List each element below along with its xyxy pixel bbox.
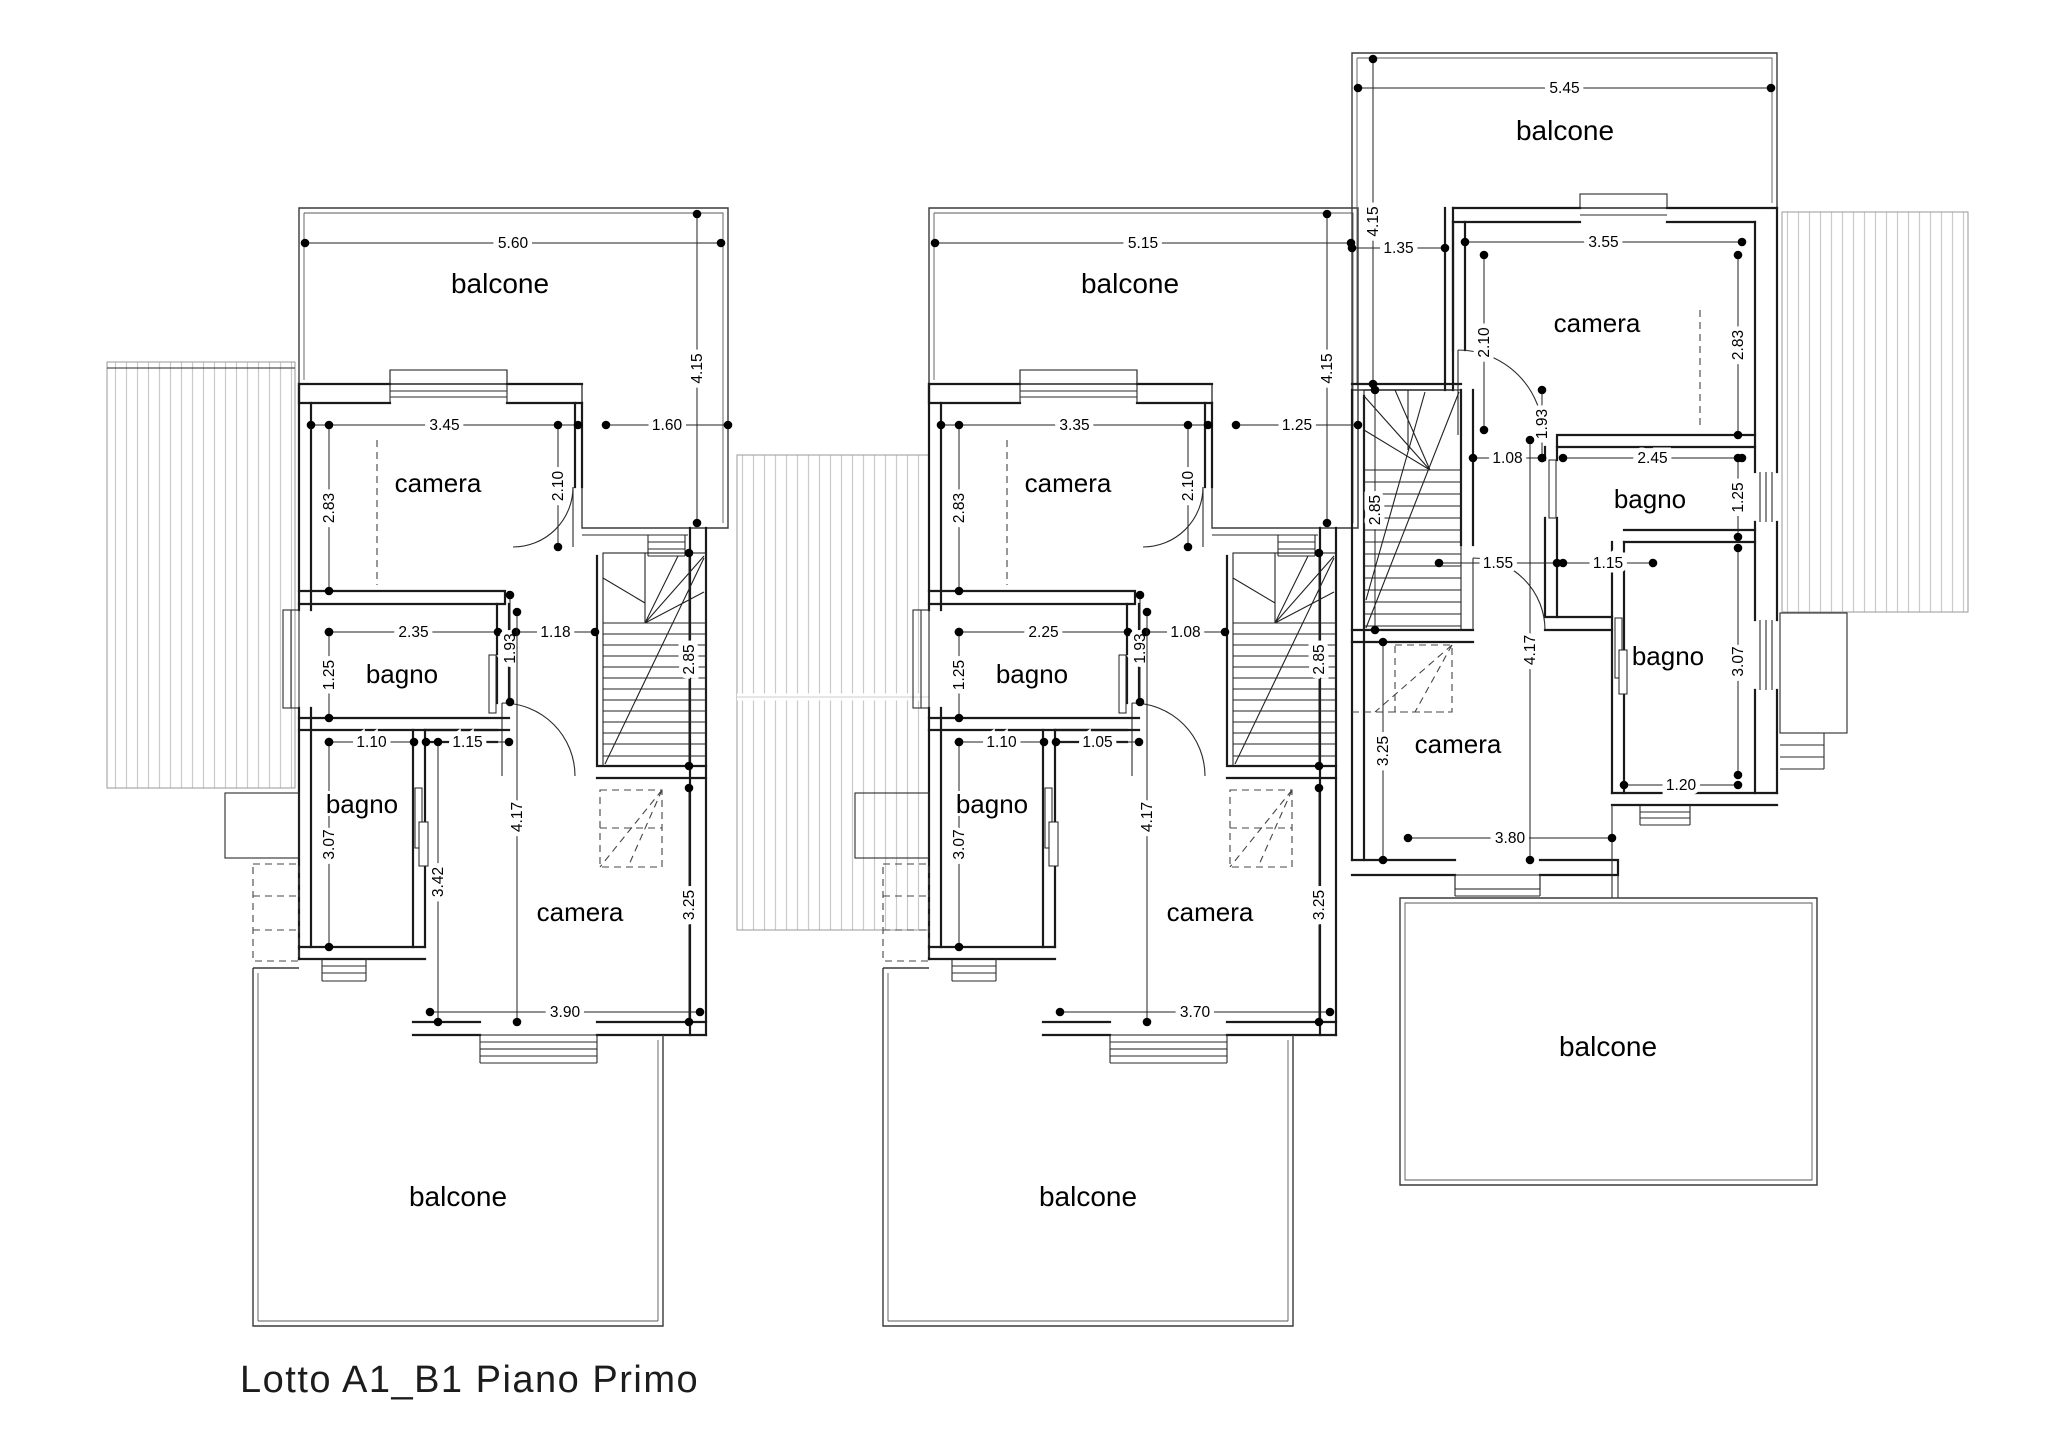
dimension-dot — [1538, 454, 1547, 463]
dimension-label: 1.15 — [452, 734, 482, 751]
roof-hatch-between-a-b — [737, 455, 929, 930]
dimension-dot — [685, 762, 694, 771]
dimension-label: 1.93 — [1132, 633, 1149, 663]
dimension-dot — [1526, 436, 1535, 445]
dimension-label: 4.15 — [689, 353, 706, 383]
room-label: balcone — [1039, 1181, 1137, 1212]
roof-hatch-left — [107, 362, 295, 788]
dimension-dot — [325, 943, 334, 952]
dimension-label: 3.90 — [550, 1004, 581, 1021]
dimension-label: 1.20 — [1666, 777, 1697, 794]
dimension-label: 2.35 — [398, 624, 428, 641]
unit-c-walls — [1352, 53, 1847, 1185]
dimension-label: 2.10 — [1476, 327, 1493, 358]
room-label: bagno — [326, 789, 398, 819]
room-label: camera — [395, 468, 482, 498]
dimension-dot — [685, 1018, 694, 1027]
dimension-dot — [1480, 251, 1489, 260]
dimension-dot — [1326, 1008, 1335, 1017]
dimension-dot — [1559, 559, 1568, 568]
dimension-dot — [1369, 55, 1378, 64]
dimension-label: 4.15 — [1365, 206, 1382, 236]
dimension-dot — [955, 738, 964, 747]
room-label: camera — [537, 897, 624, 927]
dimension-label: 1.60 — [652, 417, 683, 434]
dimension-dot — [937, 421, 946, 430]
dimension-dot — [1734, 431, 1743, 440]
dimension-dot — [1379, 856, 1388, 865]
dimension-dot — [325, 421, 334, 430]
dimension-dot — [1480, 426, 1489, 435]
room-label: camera — [1554, 308, 1641, 338]
dimension-dot — [591, 628, 600, 637]
room-label: bagno — [996, 659, 1068, 689]
dimension-dot — [1734, 781, 1743, 790]
dimension-label: 4.17 — [1139, 802, 1156, 832]
dimension-label: 3.35 — [1059, 417, 1089, 434]
dimension-label: 4.15 — [1319, 353, 1336, 383]
dimension-dot — [1435, 559, 1444, 568]
dimension-dot — [1143, 608, 1152, 617]
dimension-dot — [1354, 421, 1363, 430]
dimension-dot — [1348, 244, 1357, 253]
dimension-label: 2.83 — [951, 493, 968, 523]
dimension-label: 1.18 — [540, 624, 570, 641]
dimension-dot — [506, 591, 515, 600]
dimension-label: 3.70 — [1180, 1004, 1211, 1021]
dimension-dot — [1371, 626, 1380, 635]
dimension-dot — [505, 738, 514, 747]
dimension-dot — [1232, 421, 1241, 430]
room-label: balcone — [1516, 115, 1614, 146]
dimension-dot — [1315, 762, 1324, 771]
room-label: camera — [1167, 897, 1254, 927]
dimension-dot — [693, 210, 702, 219]
dimension-dot — [955, 587, 964, 596]
dimension-dot — [1559, 454, 1568, 463]
room-label: bagno — [1632, 641, 1704, 671]
dimension-label: 3.45 — [429, 417, 459, 434]
dimension-dot — [1056, 1008, 1065, 1017]
plan-title: Lotto A1_B1 Piano Primo — [240, 1359, 699, 1401]
dimension-dot — [512, 628, 521, 637]
dimension-dot — [693, 519, 702, 528]
dimension-dot — [602, 421, 611, 430]
floor-plan-page: 5.604.153.451.602.832.102.351.931.181.25… — [0, 0, 2048, 1448]
dimension-dot — [685, 549, 694, 558]
dimension-dot — [1315, 784, 1324, 793]
dimension-dot — [1734, 771, 1743, 780]
dimension-dot — [955, 943, 964, 952]
dimension-label: 1.93 — [1534, 409, 1551, 439]
dimension-dot — [1404, 834, 1413, 843]
dimension-label: 3.07 — [1730, 646, 1747, 676]
dimension-label: 2.83 — [321, 493, 338, 523]
dimension-dot — [1371, 386, 1380, 395]
dimension-label: 3.07 — [321, 829, 338, 859]
dimension-dot — [426, 1008, 435, 1017]
dimension-dot — [1040, 738, 1049, 747]
dimension-dot — [724, 421, 733, 430]
dimension-dot — [513, 608, 522, 617]
dimension-label: 2.10 — [1180, 471, 1197, 502]
dimension-dot — [1767, 84, 1776, 93]
dimension-label: 2.10 — [550, 471, 567, 502]
dimension-dot — [1734, 454, 1743, 463]
dimension-dot — [1136, 591, 1145, 600]
dimension-label: 1.25 — [321, 660, 338, 690]
room-label: balcone — [1081, 268, 1179, 299]
dimension-dot — [325, 714, 334, 723]
plan-annotations: 5.604.153.451.602.832.102.351.931.181.25… — [240, 55, 1775, 1401]
dimension-label: 3.25 — [681, 890, 698, 920]
dimension-dot — [325, 628, 334, 637]
dimension-dot — [1221, 628, 1230, 637]
dimension-label: 3.42 — [430, 867, 447, 897]
dimension-dot — [1608, 834, 1617, 843]
dimension-label: 2.25 — [1028, 624, 1058, 641]
room-label: bagno — [366, 659, 438, 689]
dimension-dot — [1143, 1018, 1152, 1027]
dimension-dot — [1734, 544, 1743, 553]
dimension-dot — [717, 239, 726, 248]
dimension-label: 3.55 — [1588, 234, 1618, 251]
dimension-label: 4.17 — [1522, 635, 1539, 665]
dimension-label: 2.83 — [1730, 330, 1747, 360]
dimension-dot — [1052, 738, 1061, 747]
dimension-dot — [307, 421, 316, 430]
dimension-label: 5.45 — [1549, 80, 1579, 97]
dimension-dot — [1354, 84, 1363, 93]
dimension-dot — [1620, 781, 1629, 790]
floor-plan-drawing: 5.604.153.451.602.832.102.351.931.181.25… — [0, 0, 2048, 1448]
dimension-dot — [1142, 628, 1151, 637]
dimension-label: 1.10 — [986, 734, 1017, 751]
dimension-dot — [1184, 543, 1193, 552]
dimension-dot — [1135, 738, 1144, 747]
dimension-dot — [685, 784, 694, 793]
dimension-dot — [955, 421, 964, 430]
room-label: balcone — [451, 268, 549, 299]
dimension-dot — [494, 628, 503, 637]
dimension-dot — [1184, 421, 1193, 430]
dimension-label: 5.60 — [498, 235, 529, 252]
dimension-dot — [1469, 454, 1478, 463]
dimension-label: 5.15 — [1128, 235, 1158, 252]
dimension-label: 4.17 — [509, 802, 526, 832]
dimension-dot — [574, 421, 583, 430]
dimension-dot — [554, 543, 563, 552]
dimension-dot — [1649, 559, 1658, 568]
dimension-dot — [325, 587, 334, 596]
dimension-label: 1.93 — [502, 633, 519, 663]
unit-c-annotations: 5.454.151.353.552.102.831.931.082.451.25… — [1348, 55, 1776, 1062]
dimension-label: 3.25 — [1375, 736, 1392, 766]
room-label: balcone — [409, 1181, 507, 1212]
dimension-dot — [410, 738, 419, 747]
room-label: bagno — [1614, 484, 1686, 514]
dimension-dot — [955, 714, 964, 723]
dimension-label: 2.85 — [1367, 495, 1384, 525]
dimension-dot — [931, 239, 940, 248]
dimension-label: 1.08 — [1492, 450, 1522, 467]
room-label: balcone — [1559, 1031, 1657, 1062]
dimension-label: 2.85 — [681, 644, 698, 674]
dimension-dot — [1124, 628, 1133, 637]
dimension-label: 1.10 — [356, 734, 387, 751]
room-label: bagno — [956, 789, 1028, 819]
dimension-dot — [955, 628, 964, 637]
unit-a-walls — [225, 208, 728, 1326]
dimension-dot — [1441, 244, 1450, 253]
room-label: camera — [1025, 468, 1112, 498]
dimension-label: 1.15 — [1593, 555, 1623, 572]
dimension-label: 1.35 — [1383, 240, 1413, 257]
dimension-dot — [513, 1018, 522, 1027]
dimension-dot — [434, 1018, 443, 1027]
dimension-dot — [301, 239, 310, 248]
dimension-dot — [554, 421, 563, 430]
dimension-label: 3.25 — [1311, 890, 1328, 920]
unit-b-walls — [855, 208, 1358, 1326]
dimension-label: 1.05 — [1082, 734, 1112, 751]
dimension-label: 1.25 — [1730, 482, 1747, 512]
dimension-dot — [1738, 238, 1747, 247]
dimension-dot — [1734, 533, 1743, 542]
dimension-label: 1.08 — [1170, 624, 1200, 641]
room-label: camera — [1415, 729, 1502, 759]
dimension-dot — [1204, 421, 1213, 430]
dimension-label: 2.85 — [1311, 644, 1328, 674]
dimension-dot — [1734, 251, 1743, 260]
dimension-label: 2.45 — [1637, 450, 1667, 467]
dimension-label: 1.25 — [1282, 417, 1312, 434]
dimension-dot — [696, 1008, 705, 1017]
dimension-label: 1.25 — [951, 660, 968, 690]
dimension-dot — [1538, 386, 1547, 395]
roof-hatch-right-of-c — [1782, 212, 1968, 612]
dimension-dot — [1526, 856, 1535, 865]
dimension-label: 1.55 — [1483, 555, 1513, 572]
dimension-dot — [506, 698, 515, 707]
dimension-dot — [1136, 698, 1145, 707]
dimension-dot — [1315, 549, 1324, 558]
dimension-dot — [1323, 210, 1332, 219]
dimension-dot — [1461, 238, 1470, 247]
dimension-dot — [325, 738, 334, 747]
dimension-dot — [1323, 519, 1332, 528]
dimension-label: 3.80 — [1495, 830, 1526, 847]
dimension-label: 3.07 — [951, 829, 968, 859]
dimension-dot — [434, 738, 443, 747]
dimension-dot — [1379, 638, 1388, 647]
dimension-dot — [1315, 1018, 1324, 1027]
dimension-dot — [422, 738, 431, 747]
